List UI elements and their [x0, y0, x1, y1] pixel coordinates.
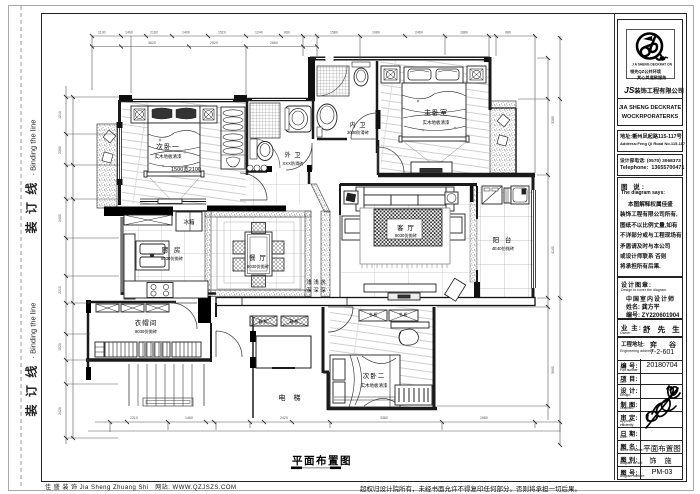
svg-text:2210: 2210	[130, 416, 138, 420]
svg-text:980: 980	[505, 31, 511, 35]
svg-text:1880: 1880	[460, 31, 468, 35]
svg-text:冰箱: 冰箱	[183, 218, 195, 226]
svg-text:3360: 3360	[380, 416, 388, 420]
svg-text:2360: 2360	[58, 146, 62, 154]
svg-text:2160: 2160	[150, 31, 158, 35]
svg-text:2400: 2400	[58, 214, 62, 222]
svg-text:实木地板清漆: 实木地板清漆	[361, 382, 388, 389]
svg-text:次卧二: 次卧二	[363, 371, 386, 380]
svg-text:1460: 1460	[125, 31, 133, 35]
svg-text:1580: 1580	[330, 31, 338, 35]
svg-text:阳 台: 阳 台	[493, 235, 514, 244]
svg-text:1400: 1400	[182, 31, 190, 35]
svg-text:2660: 2660	[270, 41, 278, 45]
svg-text:1460: 1460	[185, 416, 193, 420]
svg-text:鞋-柜: 鞋-柜	[259, 319, 268, 324]
svg-text:客 厅: 客 厅	[397, 223, 415, 232]
svg-text:6030仿抛砖: 6030仿抛砖	[161, 255, 183, 262]
svg-text:1080: 1080	[372, 31, 380, 35]
svg-text:3660: 3660	[551, 366, 555, 374]
svg-text:1520: 1520	[218, 31, 226, 35]
svg-text:1210: 1210	[58, 111, 62, 119]
svg-text:960: 960	[284, 31, 290, 35]
svg-text:书-柜: 书-柜	[369, 312, 378, 317]
svg-text:3030防滑砖: 3030防滑砖	[347, 129, 369, 136]
svg-text:8030仿抛砖: 8030仿抛砖	[395, 232, 417, 239]
svg-text:2520: 2520	[210, 41, 218, 45]
svg-text:厨 房: 厨 房	[162, 245, 183, 254]
svg-text:4160: 4160	[551, 246, 555, 254]
svg-text:2680: 2680	[480, 416, 488, 420]
svg-text:XXX防滑砖: XXX防滑砖	[283, 160, 304, 167]
svg-text:1130: 1130	[98, 31, 106, 35]
svg-text:书-柜: 书-柜	[399, 312, 408, 317]
svg-text:实木地板清漆: 实木地板清漆	[423, 119, 450, 126]
svg-text:内 卫: 内 卫	[350, 121, 367, 129]
svg-text:8030仿抛砖: 8030仿抛砖	[135, 328, 157, 335]
svg-text:外 卫: 外 卫	[285, 151, 302, 159]
svg-text:2460: 2460	[415, 31, 423, 35]
svg-text:2420: 2420	[280, 416, 288, 420]
svg-text:次卧一: 次卧一	[156, 142, 180, 151]
svg-text:8030仿抛砖: 8030仿抛砖	[247, 263, 269, 270]
svg-text:餐 厅: 餐 厅	[249, 253, 267, 262]
svg-text:2420: 2420	[58, 407, 62, 415]
svg-text:实木地板清漆: 实木地板清漆	[155, 153, 182, 160]
svg-text:4E40仿抛砖: 4E40仿抛砖	[492, 245, 514, 252]
svg-text:深 深 深: 深 深 深	[306, 286, 326, 294]
svg-text:电 梯: 电 梯	[279, 393, 304, 402]
svg-text:主卧室: 主卧室	[424, 108, 448, 117]
svg-text:1240: 1240	[255, 31, 263, 35]
svg-text:3620: 3620	[148, 41, 156, 45]
svg-text:平面布置图: 平面布置图	[292, 454, 352, 467]
svg-text:1500宽2100: 1500宽2100	[171, 165, 201, 173]
svg-text:1520: 1520	[58, 343, 62, 351]
svg-text:3280: 3280	[551, 116, 555, 124]
svg-text:浅 浅 水: 浅 浅 水	[306, 278, 326, 286]
svg-text:鞋-柜: 鞋-柜	[290, 319, 299, 324]
svg-text:2210: 2210	[58, 286, 62, 294]
svg-text:衣帽间: 衣帽间	[135, 318, 158, 327]
